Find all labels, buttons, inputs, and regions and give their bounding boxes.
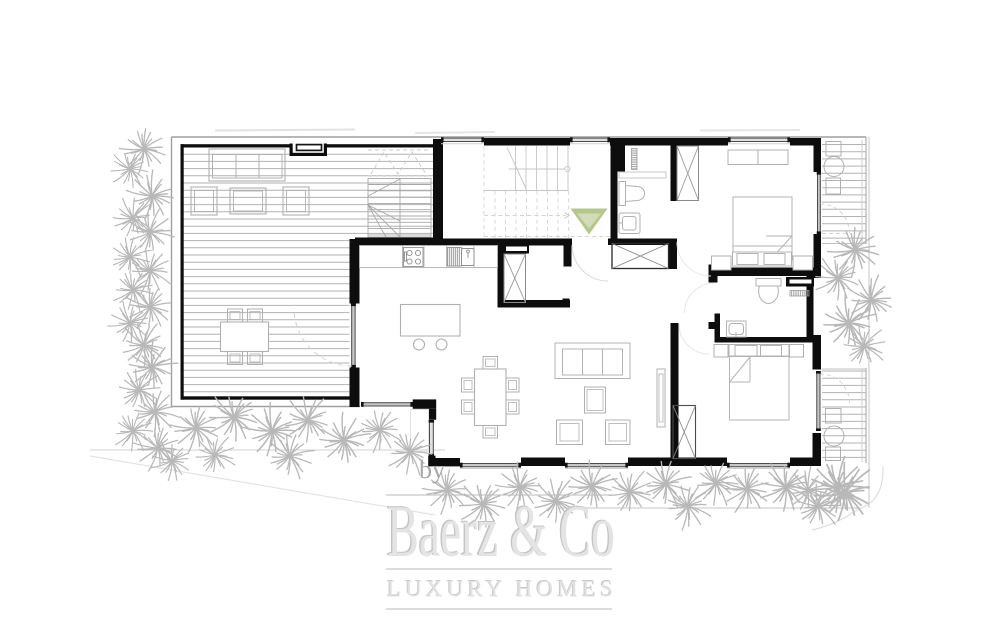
svg-text:Baerz & Co: Baerz & Co [387,491,615,573]
svg-text:by: by [419,455,445,484]
